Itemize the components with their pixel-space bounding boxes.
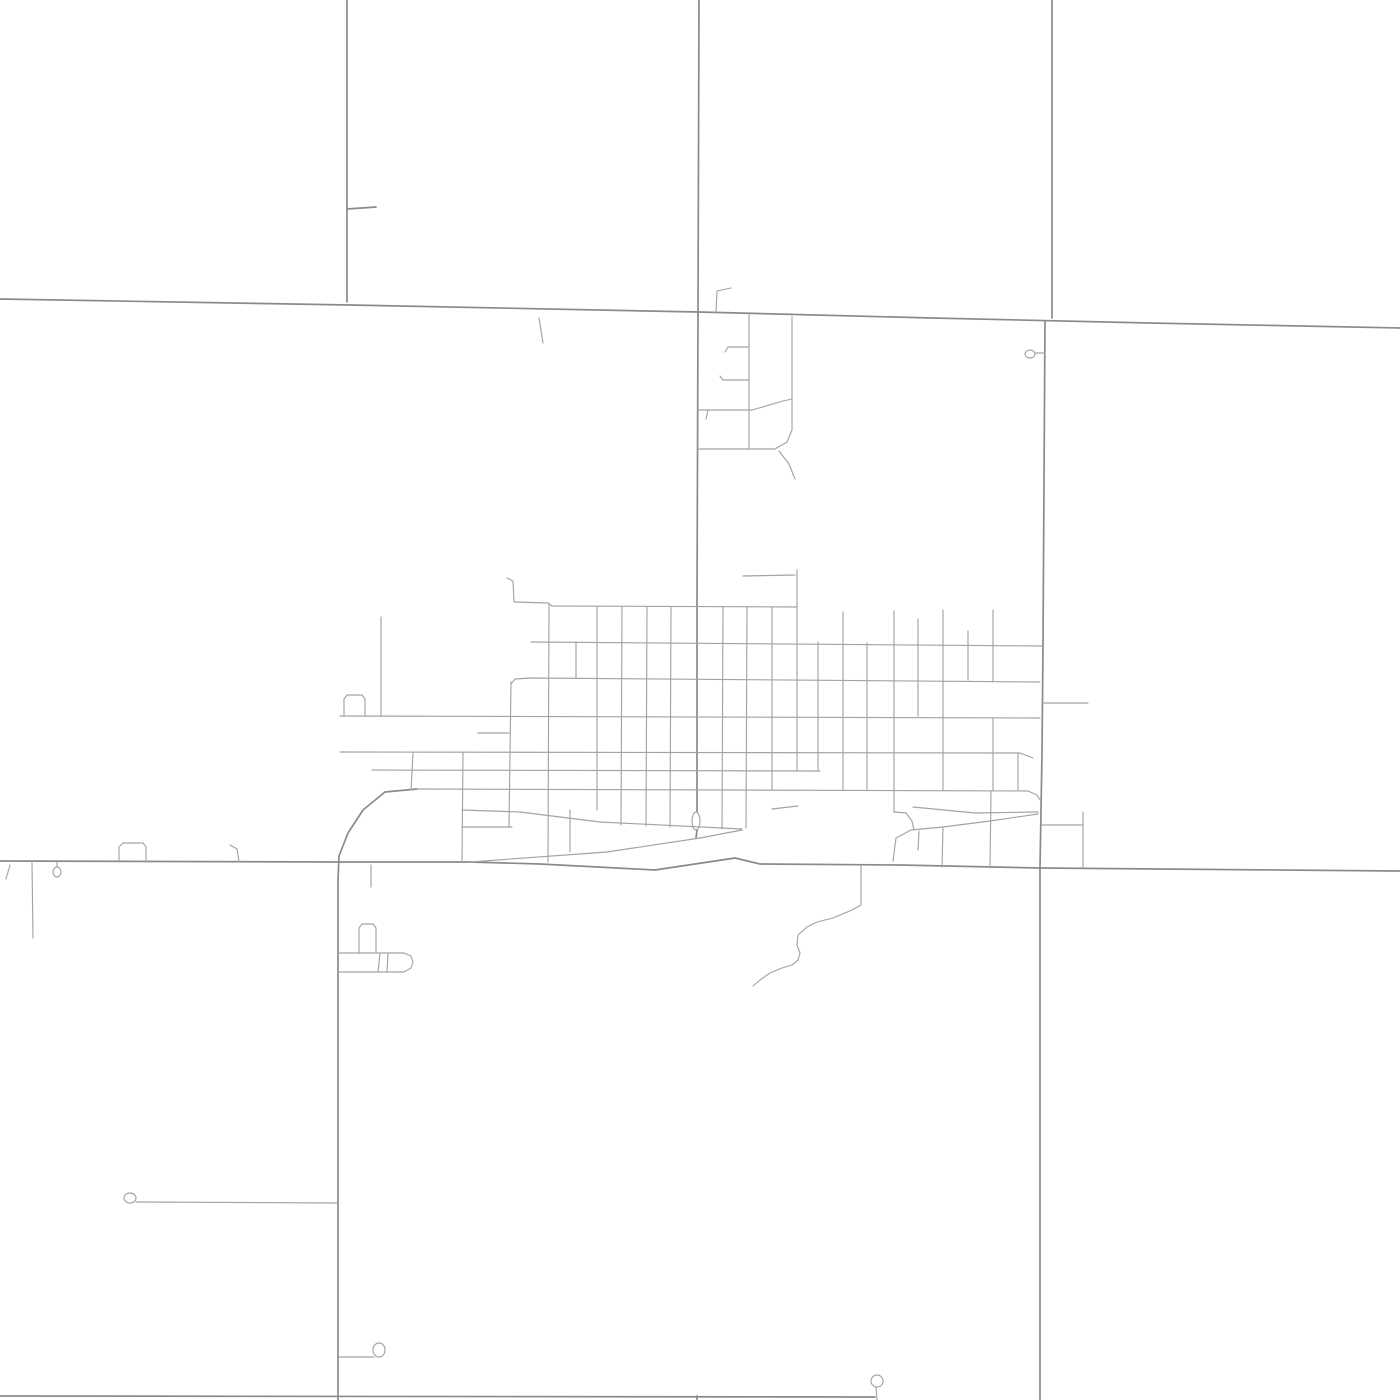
road-north-block-stub-hook <box>716 288 731 313</box>
road-street-h-770 <box>372 770 820 771</box>
road-north-block-h-347 <box>725 347 749 352</box>
road-south-spur-loop-circle <box>373 1343 385 1357</box>
road-street-diagonal-south <box>470 830 742 862</box>
road-street-h-607 <box>507 578 797 607</box>
road-section-road-west-spur <box>347 207 376 209</box>
road-street-h-642 <box>531 642 1043 646</box>
road-street-wedge-lower <box>893 814 1038 861</box>
road-band-pill-top <box>344 695 365 716</box>
road-east-loop-circle <box>1025 350 1035 358</box>
road-section-road-vertical-east-south <box>1040 321 1045 1400</box>
road-south-loop-57-circle <box>53 867 61 877</box>
road-south-stub-32 <box>32 863 33 938</box>
road-street-h-808-stub <box>772 806 798 809</box>
road-street-h-790 <box>417 789 1040 800</box>
road-dumbbell-lollipop <box>359 924 376 953</box>
road-west-spur-1203 <box>136 1202 338 1203</box>
road-bottom-edge-road <box>0 1396 875 1397</box>
road-street-v-510 <box>509 682 511 827</box>
road-south-tick-8 <box>6 865 10 879</box>
map-viewport <box>0 0 1400 1400</box>
road-creek-road-squiggle <box>753 866 861 986</box>
road-west-spur-loop-circle <box>124 1193 136 1203</box>
road-balloon-stem <box>876 1387 877 1400</box>
road-street-v-622 <box>621 607 622 825</box>
road-street-v-463 <box>462 753 463 862</box>
road-dumbbell-bar-outline <box>338 953 413 972</box>
road-dumbbell-divider-b <box>387 953 388 972</box>
road-street-v-943-south <box>942 827 943 867</box>
road-county-road-north <box>0 299 1400 328</box>
road-dumbbell-divider-a <box>378 953 380 972</box>
road-north-block-h-380 <box>720 376 749 380</box>
road-north-block-tail <box>779 451 795 479</box>
road-north-block-h-410 <box>698 399 792 410</box>
road-street-v-747 <box>746 607 747 828</box>
road-north-tick-538 <box>539 318 543 343</box>
road-street-v-990-south <box>990 791 991 868</box>
road-south-bump-118 <box>119 843 146 862</box>
road-main-street-town <box>697 313 698 812</box>
road-street-v-919-stub <box>918 831 919 850</box>
road-street-h-812-east <box>894 812 914 830</box>
road-street-wedge-upper <box>913 807 1038 813</box>
road-street-v-413 <box>411 753 413 790</box>
road-section-road-curve-southwest <box>338 789 417 1400</box>
road-balloon-circle <box>871 1375 883 1387</box>
road-street-v-671 <box>670 607 671 827</box>
road-south-hook-230 <box>230 845 239 862</box>
road-main-street-town-tail <box>696 830 697 838</box>
map-canvas <box>0 0 1400 1400</box>
road-county-road-south <box>0 858 1400 871</box>
road-street-h-576-stub <box>743 575 795 576</box>
road-street-h-752 <box>340 752 1033 758</box>
road-street-v-723 <box>722 607 723 829</box>
road-north-block-h-449 <box>698 430 792 449</box>
road-street-h-678 <box>511 678 1040 684</box>
road-street-h-716 <box>340 716 1040 718</box>
road-main-street-north <box>698 0 699 313</box>
road-street-v-549 <box>548 605 549 862</box>
road-street-v-647 <box>646 607 647 826</box>
road-north-block-tick <box>706 410 708 419</box>
